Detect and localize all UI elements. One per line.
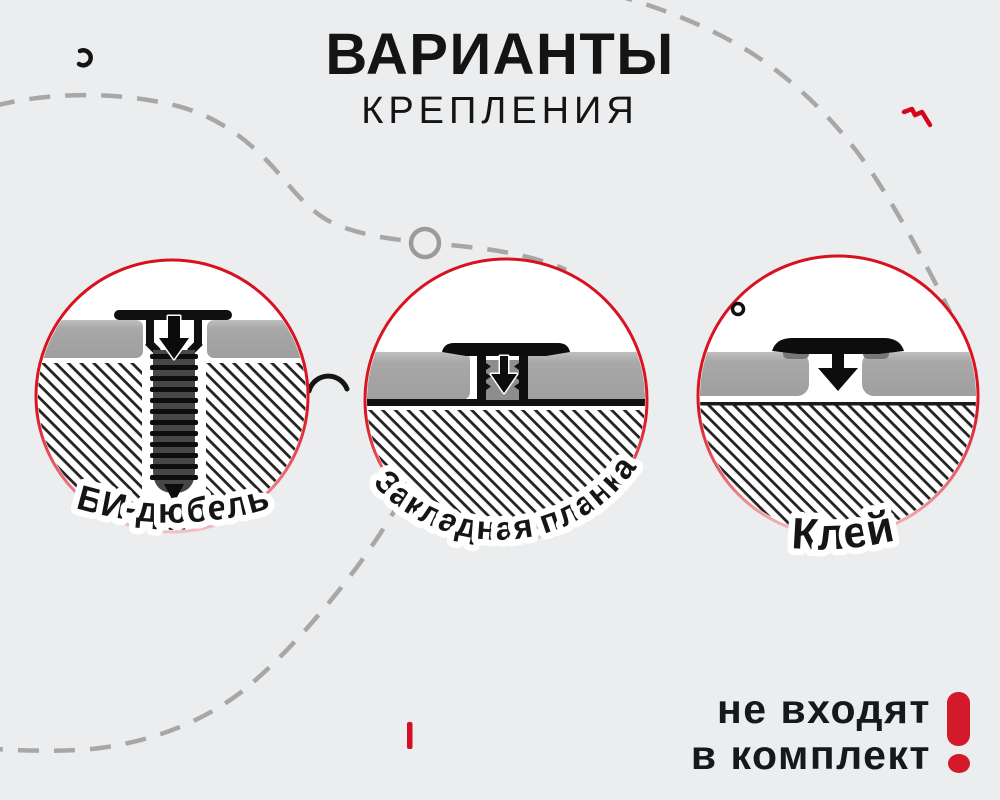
note-line-2: в комплект bbox=[691, 732, 931, 778]
not-included-note: не входят в комплект bbox=[691, 686, 970, 778]
dashed-curve-top-left bbox=[0, 95, 566, 270]
dashed-curve-top-right bbox=[612, 0, 950, 312]
dashed-curve-bottom-left bbox=[0, 498, 402, 751]
arc-decoration bbox=[309, 376, 347, 391]
note-text: не входят в комплект bbox=[691, 686, 931, 778]
circle-outline-decoration bbox=[411, 229, 439, 257]
infographic-canvas: БИ-дюбель bbox=[0, 0, 1000, 800]
option-circle-bi-dowel: БИ-дюбель bbox=[10, 260, 340, 543]
diagram-layer: БИ-дюбель bbox=[0, 0, 1000, 800]
ring-mark-decoration bbox=[733, 304, 744, 315]
red-dash-decoration bbox=[407, 722, 413, 749]
note-line-1: не входят bbox=[691, 686, 931, 732]
red-squiggle-decoration bbox=[904, 109, 930, 125]
option-circle-mounting-plate: Закладная планка bbox=[350, 259, 657, 550]
comma-mark-decoration bbox=[79, 50, 91, 65]
option-label-glue: Клей bbox=[790, 502, 898, 560]
exclamation-icon bbox=[947, 692, 970, 773]
